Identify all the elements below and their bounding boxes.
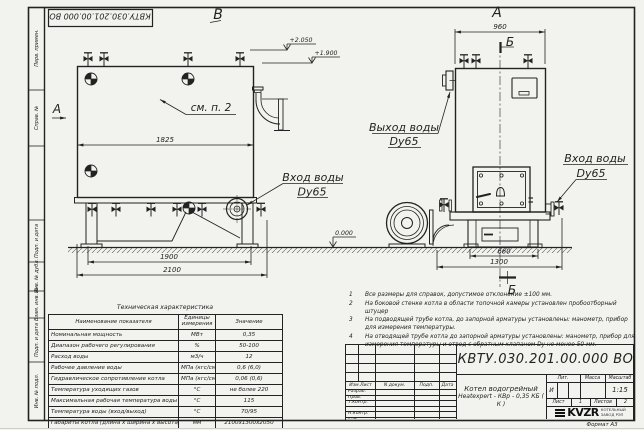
spec-cell: °С	[179, 396, 216, 407]
note-number: 2	[349, 301, 365, 317]
front-inlet-dy: Dy65	[577, 167, 606, 180]
margin-label-podp-data-2: Подп. и дата	[34, 323, 40, 357]
front-outlet-dy: Dy65	[390, 135, 419, 148]
spec-cell: Температура уходящих газов	[49, 385, 179, 396]
spec-cell: м3/ч	[179, 352, 216, 363]
side-view-geometry	[75, 67, 291, 248]
margin-label-sprav: Справ. №	[34, 106, 40, 130]
spec-cell: МПа (кгс/см2)	[179, 374, 216, 385]
doc-name-line2: Heatexpert - КВр - 0,35 КБ ( К )	[456, 393, 546, 408]
note-number: 1	[349, 292, 365, 300]
note-text: На боковой стенке котла в области топочн…	[365, 301, 637, 317]
spec-cell: %	[179, 341, 216, 352]
tb-mass-header: Масса	[580, 374, 605, 382]
note-text: Все размеры для справок, допустимое откл…	[365, 292, 637, 300]
front-outlet-label: Выход воды	[369, 121, 439, 134]
front-inlet-label: Вход воды	[564, 152, 626, 165]
kvzr-logo: KVZR КОТЕЛЬНЫЙ ЗАВОД РЭП	[555, 406, 625, 419]
spec-cell: 70/95	[216, 407, 283, 418]
side-inlet-label: Вход воды	[282, 171, 344, 184]
title-block-doc-name: Котел водогрейный Heatexpert - КВр - 0,3…	[456, 374, 546, 419]
spec-cell: МПа (кгс/см2)	[179, 363, 216, 374]
spec-row: Температура уходящих газов°Сне более 220	[49, 385, 283, 396]
stamp-top-designation: КВТУ.030.201.00.000 ВО	[49, 12, 150, 21]
tb-header-podp: Подп.	[414, 381, 439, 389]
dim-960: 960	[493, 23, 507, 31]
title-block: КВТУ.030.201.00.000 ВО Изм.Лист N докум.…	[345, 344, 634, 421]
spec-cell: Гидравлическое сопротивление котла	[49, 374, 179, 385]
spec-cell: Расход воды	[49, 352, 179, 363]
view-a-label: А	[491, 5, 502, 21]
side-view-dimensions	[52, 21, 356, 279]
spec-row: Расход водым3/ч12	[49, 352, 283, 363]
spec-cell: не более 220	[216, 385, 283, 396]
logo-caption-line2: ЗАВОД РЭП	[601, 412, 624, 417]
view-b-label: В	[213, 7, 223, 23]
margin-label-podp-data-1: Подп. и дата	[34, 224, 40, 258]
side-view-valves	[84, 53, 266, 217]
tb-header-data: Дата	[439, 381, 456, 389]
see-note-label: см. п. 2	[191, 102, 232, 114]
tb-scale-value: 1:15	[605, 382, 635, 398]
spec-row: Рабочее давление водыМПа (кгс/см2)0,6 (6…	[49, 363, 283, 374]
dim-1900: 1900	[160, 253, 178, 261]
spec-cell: 2100х1300х2050	[216, 418, 283, 429]
tb-header-ndokum: N докум.	[375, 381, 414, 389]
note-number: 3	[349, 317, 365, 333]
note-item: 1Все размеры для справок, допустимое отк…	[349, 292, 637, 300]
spec-row: Гидравлическое сопротивление котлаМПа (к…	[49, 374, 283, 385]
spec-header-row: Наименование показателя Единицы измерени…	[49, 315, 283, 330]
kvzr-logo-icon	[555, 408, 565, 418]
note-item: 2На боковой стенке котла в области топоч…	[349, 301, 637, 317]
note-item: 3На подводящей трубе котла, до запорной …	[349, 317, 637, 333]
notes-list: 1Все размеры для справок, допустимое отк…	[349, 292, 637, 351]
spec-cell: Максимальная рабочая температура воды	[49, 396, 179, 407]
spec-cell: 50-100	[216, 341, 283, 352]
elev-zero: 0.000	[335, 230, 353, 237]
title-block-designation: КВТУ.030.201.00.000 ВО	[456, 345, 635, 374]
spec-row: Температура воды (вход/выход)°С70/95	[49, 407, 283, 418]
tb-sig-utv: Утв.	[346, 417, 377, 422]
spec-row: Номинальная мощностьМВт0,35	[49, 330, 283, 341]
tb-sheet-label: Лист	[546, 398, 571, 406]
note-text: На подводящей трубе котла, до запорной а…	[365, 317, 637, 333]
spec-cell: мм	[179, 418, 216, 429]
dim-1300: 1300	[490, 258, 508, 266]
spec-cell: Температура воды (вход/выход)	[49, 407, 179, 418]
spec-table-title: Техническая характеристика	[48, 304, 282, 314]
spec-cell: 0,06 (0,6)	[216, 374, 283, 385]
spec-row: Габариты котла (длина х ширина х высота)…	[49, 418, 283, 429]
dim-660: 660	[497, 248, 511, 256]
tb-scale-header: Масштаб	[605, 374, 635, 382]
spec-cell: Габариты котла (длина х ширина х высота)	[49, 418, 179, 429]
spec-cell: Диапазон рабочего регулирования	[49, 341, 179, 352]
tb-lit-value: И	[546, 382, 557, 398]
spec-header-name: Наименование показателя	[49, 315, 179, 330]
spec-cell: 115	[216, 396, 283, 407]
margin-label-perv-primen: Перв. примен.	[34, 29, 40, 67]
spec-table: Наименование показателя Единицы измерени…	[48, 314, 283, 429]
doc-name-line1: Котел водогрейный	[464, 385, 538, 394]
tb-sheet-value: 1	[571, 398, 590, 406]
spec-cell: Номинальная мощность	[49, 330, 179, 341]
spec-cell: 0,6 (6,0)	[216, 363, 283, 374]
spec-row: Диапазон рабочего регулирования%50-100	[49, 341, 283, 352]
spec-cell: 12	[216, 352, 283, 363]
kvzr-logo-caption: КОТЕЛЬНЫЙ ЗАВОД РЭП	[601, 408, 626, 417]
side-inlet-dy: Dy65	[298, 186, 327, 199]
company-logo-cell: KVZR КОТЕЛЬНЫЙ ЗАВОД РЭП	[546, 406, 635, 419]
dim-1825: 1825	[156, 136, 174, 144]
spec-cell: °С	[179, 407, 216, 418]
spec-cell: МВт	[179, 330, 216, 341]
page-edge	[0, 428, 644, 429]
kvzr-logo-text: KVZR	[567, 406, 598, 419]
spec-cell: 0,35	[216, 330, 283, 341]
margin-label-inv-podl: Инв. № подл.	[34, 374, 40, 409]
spec-cell: °С	[179, 385, 216, 396]
spec-header-units: Единицы измерения	[179, 315, 216, 330]
spec-row: Максимальная рабочая температура воды°С1…	[49, 396, 283, 407]
section-b-top-label: Б	[506, 35, 514, 49]
margin-label-vzam-inv: Взам. инв. №	[34, 287, 40, 321]
tb-sheets-value: 2	[616, 398, 635, 406]
spec-cell: Рабочее давление воды	[49, 363, 179, 374]
tb-lit-header: Лит.	[546, 374, 580, 382]
drawing-sheet: Перв. примен. Справ. № Подп. и дата Инв.…	[0, 0, 644, 430]
tb-header-izm-list: Изм.Лист	[346, 381, 375, 389]
dim-2100: 2100	[163, 266, 181, 274]
elev-2050: +2.050	[290, 37, 313, 44]
elev-1900: +1.900	[315, 50, 338, 57]
spec-header-value: Значение	[216, 315, 283, 330]
tb-sheets-label: Листов	[590, 398, 616, 406]
view-a-arrow-label: А	[52, 102, 61, 116]
